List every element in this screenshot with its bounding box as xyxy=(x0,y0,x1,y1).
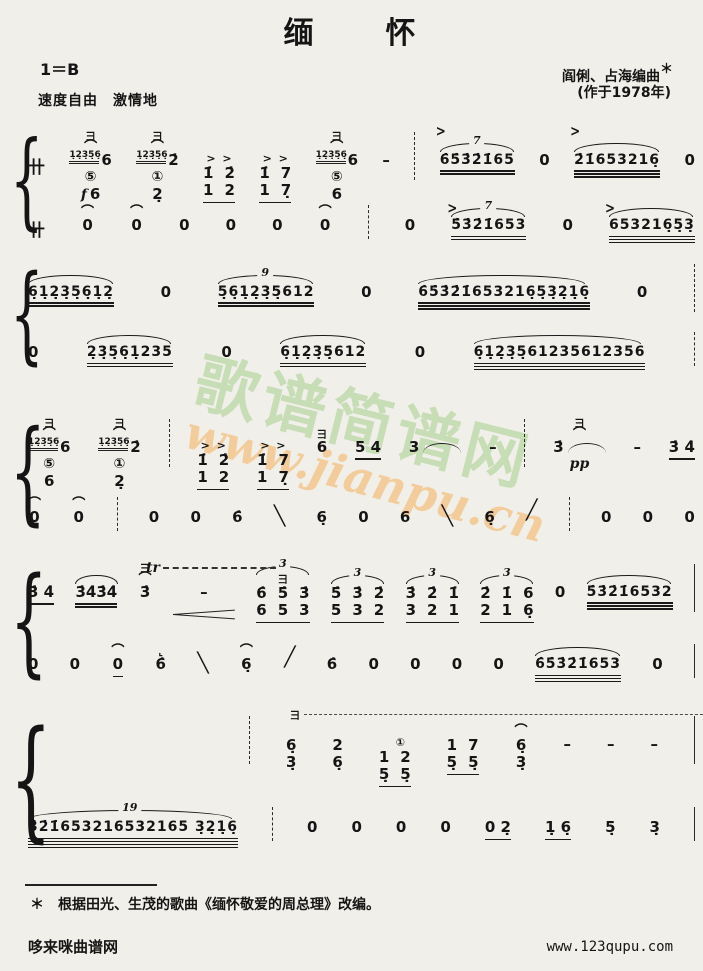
note-event: >2̇1̇653216̣ xyxy=(574,126,660,178)
chord-column: 1̇1 xyxy=(257,452,267,487)
tuplet-number: 3 xyxy=(424,567,440,578)
note-event: 3 xyxy=(409,413,461,456)
system-5: {彐6̣3̣26̣①15̣25̣15̣75̣⌒6̣3̣–––193̇2̇1̇65… xyxy=(10,710,697,848)
note-event: – xyxy=(564,710,572,753)
note-event: 0 xyxy=(161,258,171,301)
column-mark: > xyxy=(260,440,269,451)
note-event: 0 xyxy=(562,203,572,234)
system-2: {6̣1̣2̣3̣5̣6̣1̣2̣095̣6̣1̣2̣3̣5̣61206̇5̇3… xyxy=(10,258,697,370)
fermata-icon: ⌒ xyxy=(111,647,124,657)
slur-arc xyxy=(280,335,365,344)
slur-arc xyxy=(418,275,585,284)
staff-brace: { xyxy=(10,717,18,841)
note-event: ⌒6̣3̣ xyxy=(515,710,528,772)
chord-column: 3̇3 xyxy=(299,585,309,620)
yaozhi-icon: 彐 xyxy=(290,707,300,722)
fermata-icon: ⌒ xyxy=(240,647,253,657)
note-event: 0 xyxy=(70,642,80,673)
note-event: ⌞6̇ xyxy=(156,642,166,673)
note-event: 5̇3̇2̇1̇6532 xyxy=(587,558,673,610)
note-event: 6̣1̣2̣3̣5̣612 xyxy=(280,330,366,367)
tie-arc xyxy=(568,443,606,453)
system-3: {彐⌒1̣2̣3̣5̣6̣6⑤6彐⌒1̣2̣3̣5̣6̣2̇①2̣>>1̇12̇… xyxy=(10,413,697,531)
note-event: ⌒0 xyxy=(111,642,124,677)
fermata-icon: ⌒ xyxy=(139,575,152,585)
chord-column: 2̇2 xyxy=(480,585,490,620)
note-event: 3̇4̇3̇4̇ xyxy=(75,558,117,608)
chord-column: 5̇5 xyxy=(331,585,341,620)
chord-column: 6̣3̣ xyxy=(516,737,526,772)
barline-dashed xyxy=(368,205,369,239)
note-event: 彐6 xyxy=(317,413,327,456)
footnote-rule xyxy=(25,884,157,886)
chord-column: 26̣ xyxy=(332,737,342,772)
yaozhi-icon: 彐 xyxy=(278,576,288,586)
score: {卄彐⌒1̣2̣3̣5̣6̣6⑤f6彐⌒1̣2̣3̣5̣6̣2̇①2̣>>1̇1… xyxy=(0,0,703,971)
note-event: 0 xyxy=(272,203,282,234)
hairpin-icon xyxy=(173,607,235,621)
chord-column: 1̇1 xyxy=(448,585,458,620)
chord-column: 2̇2 xyxy=(427,585,437,620)
slur-arc xyxy=(474,335,641,344)
lower-staff: ⌒0⌒0006̇╲6̣06╲6̣╱000 xyxy=(28,495,695,531)
note-event: 0 xyxy=(493,642,503,673)
note-event: 0 xyxy=(410,642,420,673)
glissando-down-icon: ╲ xyxy=(274,507,285,526)
barline-solid xyxy=(694,644,695,678)
note-event: 0 xyxy=(415,330,425,361)
fermata-icon: ⌒ xyxy=(81,208,94,218)
score-page: { "page": { "title": "缅 怀", "key": "1＝B"… xyxy=(0,0,703,971)
chord-column: 1̇1 xyxy=(502,585,512,620)
barline-dashed xyxy=(524,419,525,467)
tuplet-bracket: 3 xyxy=(480,575,533,584)
tremolo-dashed-line: 彐 xyxy=(290,707,703,722)
spacer xyxy=(28,710,213,711)
chord-column: 66̣ xyxy=(523,585,533,620)
column-mark: > xyxy=(201,440,210,451)
chord-column: 2̇2 xyxy=(224,165,234,200)
note-event: 6 xyxy=(400,495,410,526)
note-event: >>1̇12̇2 xyxy=(197,413,229,490)
column-mark: > xyxy=(276,440,285,451)
tuplet-number: 3 xyxy=(275,558,291,569)
note-event: 26̣ xyxy=(332,710,342,772)
tuplet-bracket: 19 xyxy=(28,810,232,819)
tuplet-number: 7 xyxy=(469,135,485,146)
note-event: 6̇5̇3̇2̇1̇653216̣5̣3̣2̣1̣6̣ xyxy=(418,258,590,310)
note-event: ⌒0 xyxy=(72,495,85,526)
chord-column: 5̇5 xyxy=(278,585,288,620)
note-event: 1̣ 6̣ xyxy=(545,805,571,840)
note-event: 6̇ xyxy=(232,495,242,526)
note-event: 彐⌒3̇pp xyxy=(553,413,605,472)
lower-staff: 00⌒0⌞6̇╲⌒6̣╱6̇00006̇5̇3̇2̇1̇6530 xyxy=(28,642,695,682)
tuplet-number: 3 xyxy=(350,567,366,578)
note-event: 3̣ xyxy=(650,805,660,836)
column-mark: > xyxy=(279,153,288,164)
note-event: 0 xyxy=(601,495,611,526)
footnote-star-icon: ＊ xyxy=(30,897,44,913)
note-event: 15̣75̣ xyxy=(447,710,479,775)
note-event: 0 xyxy=(226,203,236,234)
note-event: 3̇ 4̇ xyxy=(669,413,695,460)
note-event: 彐⌒1̣2̣3̣5̣6̣2̇①2̣ xyxy=(98,413,140,490)
yaozhi-icon: 彐 xyxy=(317,431,327,441)
fermata-icon: ⌒ xyxy=(84,143,97,153)
note-event: 彐⌒1̣2̣3̣5̣6̣2̇①2̣ xyxy=(136,126,178,203)
note-event: 0 xyxy=(555,558,565,601)
tuplet-bracket: 3 xyxy=(331,575,384,584)
slur-arc xyxy=(574,143,659,152)
note-event: – xyxy=(607,710,615,753)
chord-column: 1̇1 xyxy=(203,165,213,200)
staff-brace: { xyxy=(10,264,18,365)
chord-column: 6̣3̣ xyxy=(286,737,296,772)
barline-dashed xyxy=(694,264,695,312)
tuplet-number: 19 xyxy=(118,802,141,813)
staff-brace: { xyxy=(10,564,18,676)
chord-column: 3̇3 xyxy=(406,585,416,620)
note-event: ⌒0 xyxy=(81,203,94,234)
note-event: 33̇32̇21̇1 xyxy=(406,558,459,623)
note-event: 6̣ xyxy=(484,495,494,526)
note-event: 0 xyxy=(440,805,450,836)
note-event: 0 xyxy=(149,495,159,526)
finger-number: ① xyxy=(114,456,126,474)
chord-column: 3̇3 xyxy=(352,585,362,620)
glissando-down-icon: ╲ xyxy=(197,654,208,673)
note-event: 32̇21̇166̣ xyxy=(480,558,533,623)
glissando-up-icon: ╱ xyxy=(284,648,295,667)
note-event: ⌒6̣ xyxy=(240,642,253,673)
column-mark: > xyxy=(217,440,226,451)
note-event: 5̣ xyxy=(605,805,615,836)
accent-icon: > xyxy=(570,122,580,140)
tuplet-bracket: 9 xyxy=(218,275,313,284)
note-event: 193̇2̇1̇653216532165 3̣2̣1̣6̣ xyxy=(28,805,238,848)
fermata-icon: ⌒ xyxy=(43,430,56,440)
slur-arc xyxy=(609,208,694,217)
barline-solid xyxy=(694,716,695,764)
slur-arc xyxy=(87,335,172,344)
dynamic-mark: pp xyxy=(570,456,590,472)
chord-column: 2̇2 xyxy=(219,452,229,487)
finger-number: ⑤ xyxy=(85,169,97,187)
trill-mark: tr xyxy=(146,560,276,576)
note-event: ①15̣25̣ xyxy=(379,710,411,787)
slur-arc xyxy=(28,275,113,284)
note-event: 0 xyxy=(358,495,368,526)
note-event: 彐⌒1̣2̣3̣5̣6̣6⑤f6 xyxy=(69,126,111,203)
chord-column: 75̣ xyxy=(468,737,478,772)
barline-dashed xyxy=(414,132,415,180)
note-event: 0 xyxy=(368,642,378,673)
note-event: 0 xyxy=(684,495,694,526)
barline-dashed xyxy=(694,332,695,366)
upper-staff: 彐⌒1̣2̣3̣5̣6̣6⑤6彐⌒1̣2̣3̣5̣6̣2̇①2̣>>1̇12̇2… xyxy=(28,413,695,490)
upper-staff: 彐6̣3̣26̣①15̣25̣15̣75̣⌒6̣3̣––– xyxy=(28,710,695,787)
note-event: 彐⌒tr3̇ xyxy=(139,558,152,601)
tie-arc xyxy=(423,443,461,453)
note-event: 6̇5̇3̇2̇1̇653 xyxy=(535,642,621,682)
upper-staff: 3̇ 4̇3̇4̇3̇4̇彐⌒tr3̇–3彐6̇65̇53̇335̇53̇32̇… xyxy=(28,558,695,623)
note-event: 0 xyxy=(539,126,549,169)
note-event: >653216̣5̣3̣ xyxy=(609,203,695,243)
barline-solid xyxy=(694,564,695,612)
tuplet-bracket: 3 xyxy=(406,575,459,584)
tuplet-number: 7 xyxy=(480,200,496,211)
note-event: 0 xyxy=(179,203,189,234)
tuplet-number: 9 xyxy=(257,267,273,278)
note-event: – xyxy=(489,413,497,456)
lower-staff: 193̇2̇1̇653216532165 3̣2̣1̣6̣00000 2̣1̣ … xyxy=(28,805,695,848)
column-mark: > xyxy=(222,153,231,164)
upper-staff: 6̣1̣2̣3̣5̣6̣1̣2̣095̣6̣1̣2̣3̣5̣61206̇5̇3̇… xyxy=(28,258,695,312)
chord-column: 77̣ xyxy=(278,452,288,487)
upper-staff: 卄彐⌒1̣2̣3̣5̣6̣6⑤f6彐⌒1̣2̣3̣5̣6̣2̇①2̣>>1̇12… xyxy=(28,126,695,203)
fermata-icon: ⌒ xyxy=(330,143,343,153)
barline-dashed xyxy=(117,497,118,531)
column-mark: > xyxy=(263,153,272,164)
chord-column: 15̣ xyxy=(379,749,389,784)
footnote: ＊ 根据田光、生茂的歌曲《缅怀敬爱的周总理》改编。 xyxy=(30,894,380,914)
glissando-up-icon: ╱ xyxy=(526,501,537,520)
barline-dashed xyxy=(569,497,570,531)
note-event: 6̇ xyxy=(327,642,337,673)
note-event: 0 xyxy=(190,495,200,526)
note-event: 0 2̣ xyxy=(485,805,511,840)
note-event: – xyxy=(651,710,659,753)
note-event: 0 xyxy=(684,126,694,169)
chord-column: 2̇2 xyxy=(374,585,384,620)
tuplet-number: 3 xyxy=(499,567,515,578)
note-event: >>1̇177̣ xyxy=(259,126,291,203)
note-event: 0 xyxy=(351,805,361,836)
note-event: 6̣ xyxy=(317,495,327,526)
fermata-icon: ⌒ xyxy=(28,500,41,510)
fermata-icon: ⌒ xyxy=(113,430,126,440)
hook-icon: ⌞ xyxy=(158,648,163,658)
note-event: – xyxy=(633,413,641,456)
system-4: {3̇ 4̇3̇4̇3̇4̇彐⌒tr3̇–3彐6̇65̇53̇335̇53̇32… xyxy=(10,558,697,682)
note-event: 6̣1̣2̣3̣5̣61235612356 xyxy=(474,330,646,370)
note-event: 0 xyxy=(307,805,317,836)
glissando-down-icon: ╲ xyxy=(442,507,453,526)
lower-staff: 卄⌒0⌒0000⌒00>75̇3̇2̇1̇6530>653216̣5̣3̣ xyxy=(28,203,695,243)
note-event: ⌒0 xyxy=(319,203,332,234)
column-mark: > xyxy=(206,153,215,164)
note-event: 0 xyxy=(643,495,653,526)
chord-column: 6̇6 xyxy=(256,585,266,620)
column-mark: ① xyxy=(396,737,405,748)
note-event: >76̇5̇3̇2̇1̇65 xyxy=(440,126,515,175)
note-event: 彐6̣3̣ xyxy=(286,710,296,772)
barline-dashed xyxy=(272,807,273,841)
slur-arc xyxy=(535,647,620,656)
lower-staff: 02̣3̣5̣6̣1̣23506̣1̣2̣3̣5̣61206̣1̣2̣3̣5̣6… xyxy=(28,330,695,370)
note-event: 2̣3̣5̣6̣1̣235 xyxy=(87,330,173,367)
dynamic-mark: f xyxy=(81,187,87,203)
fermata-icon: ⌒ xyxy=(130,208,143,218)
note-event: 35̇53̇32̇2 xyxy=(331,558,384,623)
chord-column: 25̣ xyxy=(400,749,410,784)
fermata-icon: ⌒ xyxy=(72,500,85,510)
note-event: ⌒0 xyxy=(130,203,143,234)
note-event: 0 xyxy=(361,258,371,301)
chord-column: 77̣ xyxy=(281,165,291,200)
chord-column: 1̇1 xyxy=(197,452,207,487)
fermata-icon: ⌒ xyxy=(573,430,586,440)
note-event: 0 xyxy=(221,330,231,361)
tuplet-bracket: 7 xyxy=(451,208,525,217)
note-event: – xyxy=(382,126,390,169)
note-event: 0 xyxy=(637,258,647,301)
fermata-icon: ⌒ xyxy=(319,208,332,218)
accent-icon: > xyxy=(436,122,446,140)
fermata-icon: ⌒ xyxy=(151,143,164,153)
note-event: 0 xyxy=(652,642,662,673)
note-event: 5 4 xyxy=(355,413,381,460)
note-event: 0 xyxy=(405,203,415,234)
chord-column: 1̇1 xyxy=(259,165,269,200)
barline-dashed xyxy=(169,419,170,467)
finger-number: ① xyxy=(152,169,164,187)
system-1: {卄彐⌒1̣2̣3̣5̣6̣6⑤f6彐⌒1̣2̣3̣5̣6̣2̇①2̣>>1̇1… xyxy=(10,126,697,236)
note-event: >>1̇177̣ xyxy=(257,413,289,490)
chord-column: 15̣ xyxy=(447,737,457,772)
staff-brace: { xyxy=(10,419,18,525)
note-event: >75̇3̇2̇1̇653 xyxy=(451,203,526,240)
note-event: 0 xyxy=(452,642,462,673)
finger-number: ⑤ xyxy=(331,169,343,187)
slur-arc xyxy=(587,575,672,584)
barline-dashed xyxy=(249,716,250,764)
site-name-left: 哆来咪曲谱网 xyxy=(28,936,118,957)
site-url-right[interactable]: www.123qupu.com xyxy=(547,939,673,955)
tuplet-bracket: 7 xyxy=(440,143,514,152)
barline-solid xyxy=(694,807,695,841)
slur-arc xyxy=(75,575,117,584)
footnote-text: 根据田光、生茂的歌曲《缅怀敬爱的周总理》改编。 xyxy=(58,897,380,913)
staff-brace: { xyxy=(10,131,18,231)
note-event: 95̣6̣1̣2̣3̣5̣612 xyxy=(218,258,315,307)
fermata-icon: ⌒ xyxy=(515,727,528,737)
note-event: 0 xyxy=(396,805,406,836)
note-event: >>1̇12̇2 xyxy=(203,126,235,203)
note-event: 彐⌒1̣2̣3̣5̣6̣6⑤6 xyxy=(316,126,358,203)
